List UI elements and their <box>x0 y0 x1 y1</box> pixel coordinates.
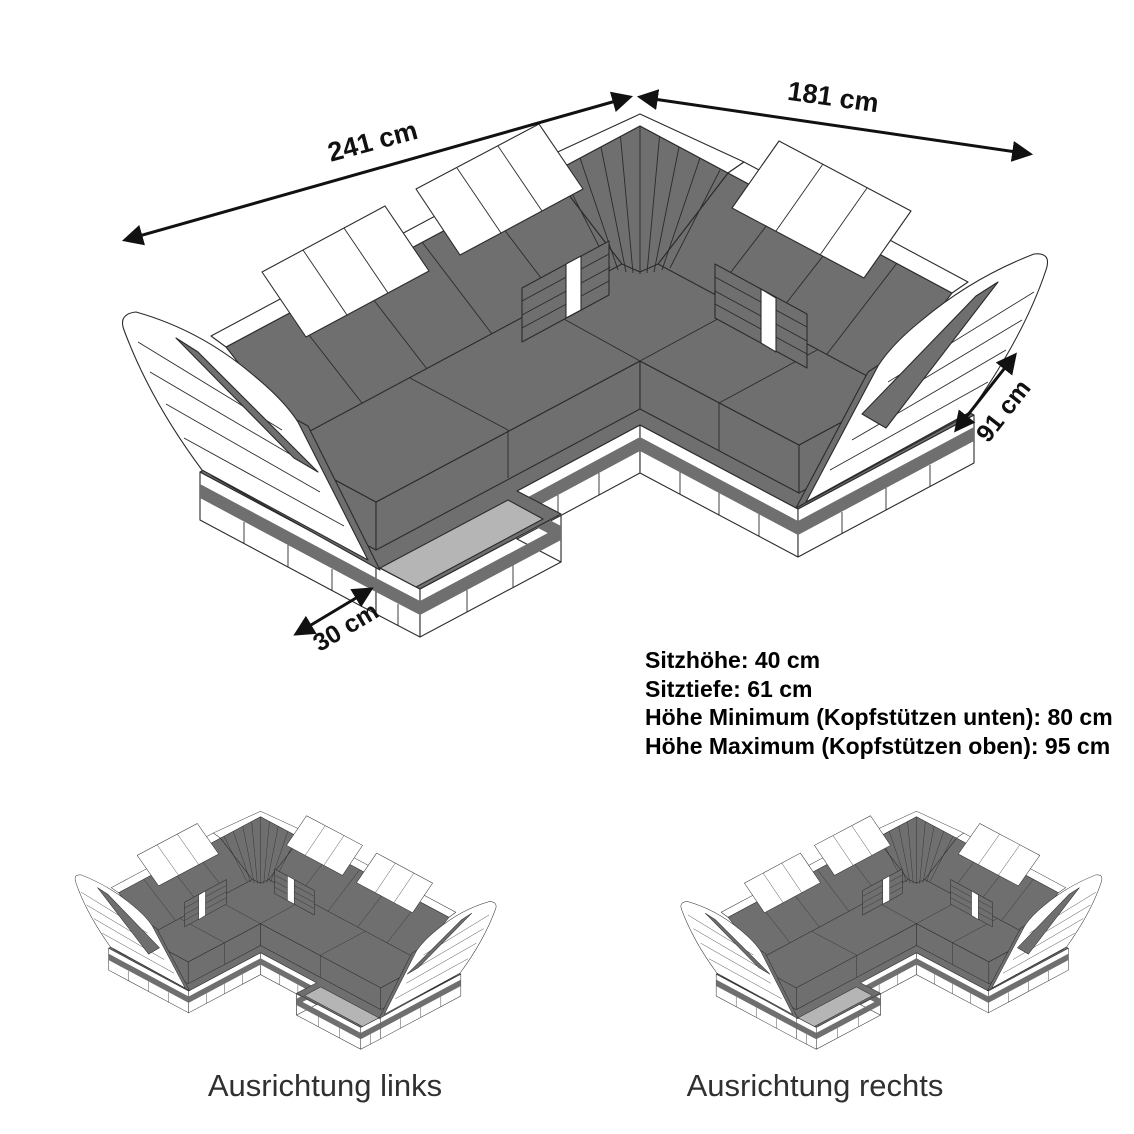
orientation-label-rechts: Ausrichtung rechts <box>687 1068 944 1103</box>
dimension-label-short-side: 181 cm <box>786 76 881 118</box>
dimension-label-base-platform: 30 cm <box>308 597 383 658</box>
spec-line-seat-depth: Sitztiefe: 61 cm <box>645 675 1113 704</box>
sofa-drawing-right-variant <box>681 811 1102 1049</box>
spec-text-block: Sitzhöhe: 40 cm Sitztiefe: 61 cm Höhe Mi… <box>645 646 1113 760</box>
dimension-arrow-base-platform: 30 cm <box>296 589 383 657</box>
orientation-label-links: Ausrichtung links <box>208 1068 442 1103</box>
sofa-diagram-svg: 241 cm 181 cm 91 cm 30 cm Ausrichtung li… <box>0 0 1134 1134</box>
product-dimension-diagram: 241 cm 181 cm 91 cm 30 cm Ausrichtung li… <box>0 0 1134 1134</box>
spec-line-height-max: Höhe Maximum (Kopfstützen oben): 95 cm <box>645 732 1113 761</box>
sofa-drawing-main <box>123 114 1048 637</box>
spec-line-seat-height: Sitzhöhe: 40 cm <box>645 646 1113 675</box>
sofa-drawing-left-variant <box>75 811 496 1049</box>
spec-line-height-min: Höhe Minimum (Kopfstützen unten): 80 cm <box>645 703 1113 732</box>
